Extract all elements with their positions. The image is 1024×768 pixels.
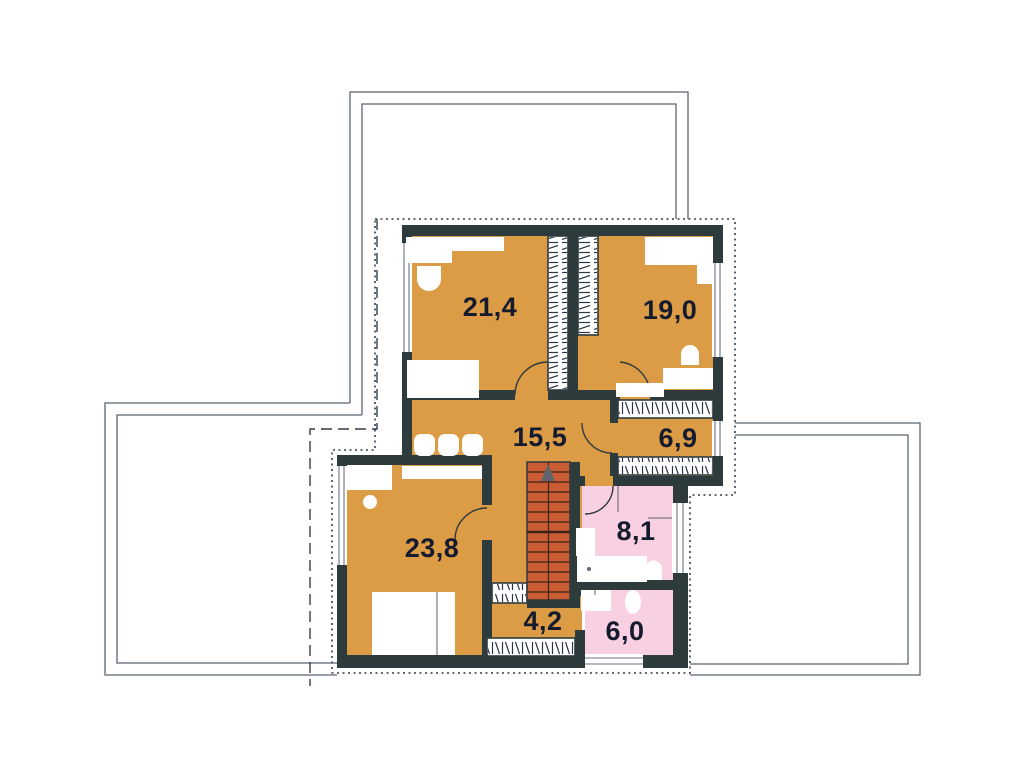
room-label: 8,1: [616, 516, 655, 546]
bed: [645, 237, 713, 265]
wall-segment: [575, 630, 585, 655]
roof-edge: [690, 423, 920, 675]
room-label: 15,5: [513, 422, 568, 452]
room-label: 19,0: [643, 295, 698, 325]
chair: [417, 266, 441, 291]
wall-segment: [673, 573, 688, 655]
sofa: [407, 360, 479, 398]
roof-edge: [117, 415, 362, 663]
sink: [580, 532, 592, 552]
floor-plan-drawing: 21,4 19,0 15,5 6,9 23,8 8,1 4,2 6,0: [0, 0, 1024, 768]
wall-segment: [713, 357, 723, 421]
chair: [414, 434, 435, 456]
wall-segment: [402, 400, 412, 455]
floor-plan-canvas: 21,4 19,0 15,5 6,9 23,8 8,1 4,2 6,0: [0, 0, 1024, 768]
wall-segment: [337, 655, 585, 668]
bed: [406, 237, 452, 263]
wall-segment: [337, 565, 347, 668]
wardrobe-strip: [492, 583, 527, 603]
washbasin: [585, 593, 605, 607]
desk: [347, 465, 392, 490]
wall-segment: [610, 400, 618, 423]
wardrobe-strip: [578, 236, 598, 335]
room-label: 6,9: [658, 423, 697, 453]
wall-segment: [673, 486, 688, 503]
toilet: [625, 590, 641, 614]
wall-segment: [643, 655, 688, 668]
bed-side: [697, 265, 713, 284]
window: [585, 654, 643, 668]
room-label: 4,2: [523, 606, 562, 636]
wall-segment: [548, 390, 620, 400]
chair: [462, 434, 483, 456]
toilet-bowl: [650, 567, 658, 577]
wall-segment: [337, 455, 347, 466]
room-label: 6,0: [605, 616, 644, 646]
wall-segment: [713, 236, 723, 263]
wall-segment: [568, 236, 578, 390]
bed-side: [452, 237, 504, 251]
staircase: [527, 462, 570, 600]
dresser: [616, 383, 664, 397]
wall-segment: [402, 225, 723, 236]
bathtub-drain: [587, 567, 591, 571]
wardrobe-strip: [618, 400, 713, 418]
wall-segment: [337, 455, 492, 465]
wardrobe-strip: [618, 457, 713, 475]
window: [672, 503, 688, 573]
toilet-bowl: [630, 594, 636, 600]
basin: [681, 345, 699, 365]
chair: [363, 495, 377, 509]
shelf: [402, 466, 482, 479]
window: [712, 421, 723, 456]
bed: [372, 592, 455, 655]
wall-segment: [610, 453, 618, 476]
chair: [438, 434, 459, 456]
roof-edge: [105, 403, 350, 675]
wardrobe-strip: [548, 236, 568, 390]
wall-segment: [482, 455, 492, 505]
room-label: 23,8: [405, 533, 460, 563]
window: [712, 263, 723, 357]
room-label: 21,4: [463, 292, 518, 322]
wall-segment: [613, 476, 723, 486]
wardrobe-strip: [487, 638, 575, 656]
dresser: [663, 368, 713, 389]
window: [336, 466, 347, 565]
